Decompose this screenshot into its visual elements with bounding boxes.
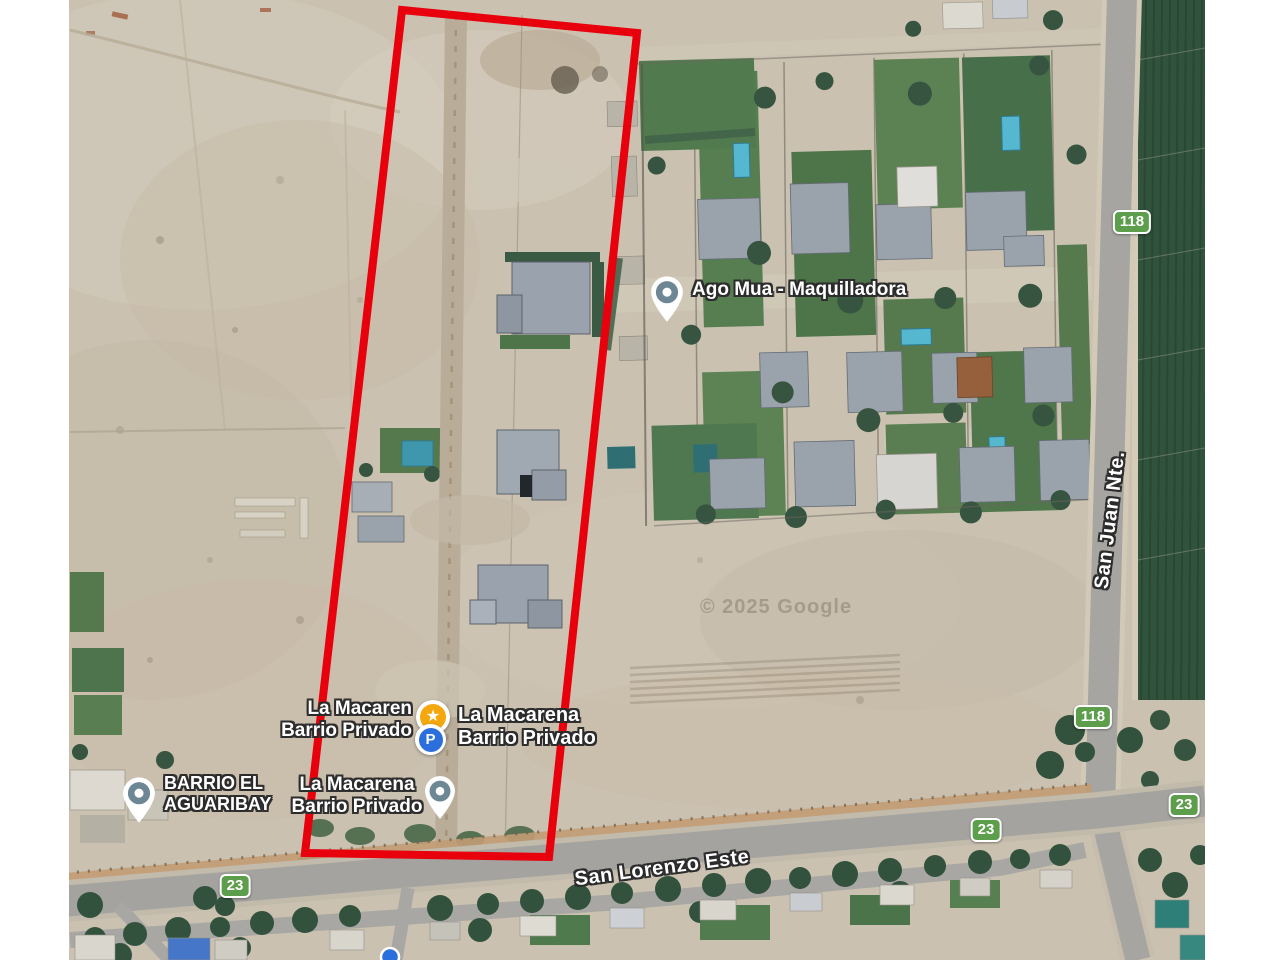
map-canvas[interactable] (0, 0, 1280, 960)
route-badge-23-west: 23 (220, 874, 251, 898)
route-badge-23-far-east: 23 (1169, 793, 1200, 817)
route-badge-118-south: 118 (1074, 705, 1112, 729)
parking-icon: P (415, 724, 446, 755)
poi-label-la-macarena-east[interactable]: La Macarena Barrio Privado (458, 704, 596, 750)
poi-marker-barrio-el-aguaribay[interactable] (122, 776, 156, 829)
poi-label-ago-mua[interactable]: Ago Mua - Maquilladora (692, 279, 906, 301)
poi-marker-ago-mua[interactable] (650, 275, 684, 328)
poi-label-la-macarena-south[interactable]: La Macarena Barrio Privado (292, 774, 423, 818)
poi-marker-la-macarena[interactable] (424, 775, 456, 825)
map-pin-icon (424, 775, 456, 820)
satellite-map-view: © 2025 Google Ago Mua - Maquilladora La … (0, 0, 1280, 960)
poi-label-barrio-el-aguaribay[interactable]: BARRIO EL AGUARIBAY (164, 773, 271, 815)
letterbox-left (0, 0, 69, 960)
map-pin-icon (650, 275, 684, 323)
route-badge-23-east: 23 (971, 818, 1002, 842)
route-badge-118-north: 118 (1113, 210, 1151, 234)
poi-label-la-macarena-west[interactable]: La Macaren Barrio Privado (281, 698, 412, 742)
map-attribution: © 2025 Google (700, 597, 852, 617)
orchard-east (1132, 0, 1205, 789)
letterbox-right (1205, 0, 1280, 960)
map-pin-icon (122, 776, 156, 824)
